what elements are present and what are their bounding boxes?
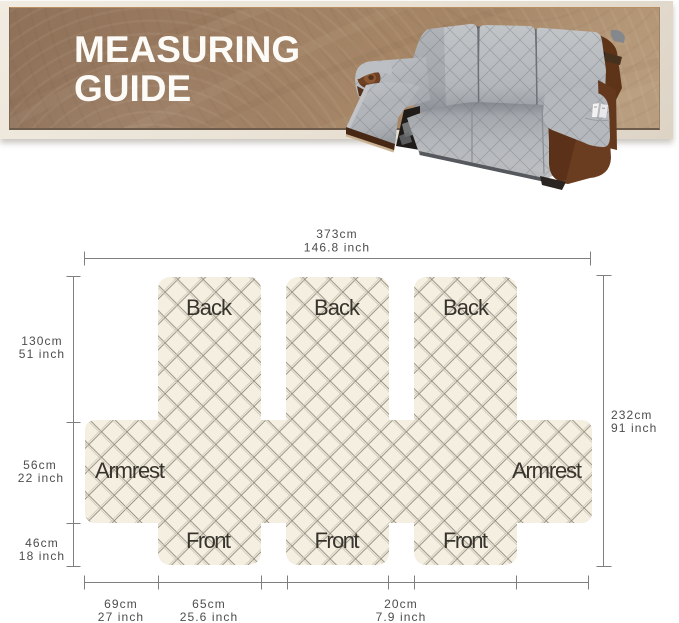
svg-text:46cm: 46cm bbox=[25, 536, 59, 550]
svg-text:69cm: 69cm bbox=[104, 597, 138, 611]
svg-text:18 inch: 18 inch bbox=[19, 549, 65, 563]
svg-text:146.8 inch: 146.8 inch bbox=[304, 241, 370, 255]
svg-text:373cm: 373cm bbox=[316, 227, 358, 241]
svg-text:Front: Front bbox=[315, 528, 360, 553]
svg-text:232cm: 232cm bbox=[611, 408, 653, 422]
svg-text:91 inch: 91 inch bbox=[611, 421, 657, 435]
svg-text:Back: Back bbox=[186, 295, 233, 320]
svg-text:7.9 inch: 7.9 inch bbox=[376, 610, 427, 623]
svg-text:56cm: 56cm bbox=[23, 458, 57, 472]
svg-text:65cm: 65cm bbox=[192, 597, 226, 611]
svg-text:27 inch: 27 inch bbox=[98, 610, 144, 623]
svg-text:25.6 inch: 25.6 inch bbox=[180, 610, 239, 623]
svg-text:20cm: 20cm bbox=[384, 597, 418, 611]
svg-text:Back: Back bbox=[443, 295, 490, 320]
svg-text:51 inch: 51 inch bbox=[19, 347, 65, 361]
svg-text:Back: Back bbox=[314, 295, 361, 320]
svg-text:Front: Front bbox=[443, 528, 488, 553]
svg-text:Armrest: Armrest bbox=[95, 458, 165, 483]
svg-text:130cm: 130cm bbox=[21, 334, 63, 348]
svg-text:Front: Front bbox=[186, 528, 231, 553]
svg-text:Armrest: Armrest bbox=[512, 458, 582, 483]
svg-text:22 inch: 22 inch bbox=[18, 471, 64, 485]
